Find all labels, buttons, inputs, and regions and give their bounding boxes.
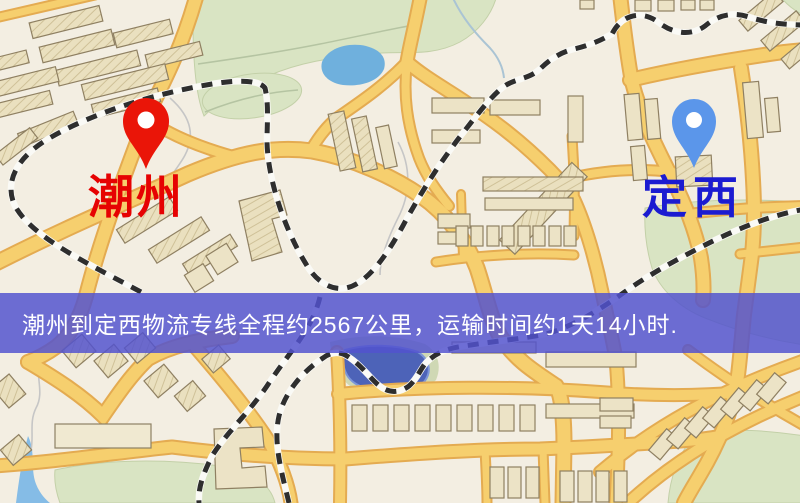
route-map-image: 潮州 定西 潮州到定西物流专线全程约2567公里，运输时间约1天14小时. xyxy=(0,0,800,503)
route-info-banner: 潮州到定西物流专线全程约2567公里，运输时间约1天14小时. xyxy=(0,293,800,353)
origin-city-label: 潮州 xyxy=(88,175,184,221)
route-info-text: 潮州到定西物流专线全程约2567公里，运输时间约1天14小时. xyxy=(22,306,678,340)
map-canvas xyxy=(0,0,800,503)
destination-city-label: 定西 xyxy=(642,176,744,221)
